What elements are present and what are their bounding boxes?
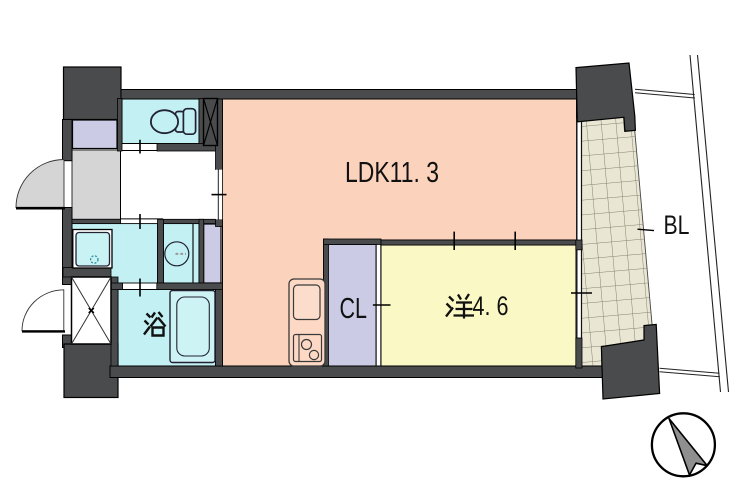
svg-text:BL: BL (664, 210, 690, 240)
svg-text:CL: CL (340, 293, 368, 325)
svg-text:LDK11. 3: LDK11. 3 (345, 157, 439, 189)
svg-text:4. 6: 4. 6 (473, 291, 509, 321)
